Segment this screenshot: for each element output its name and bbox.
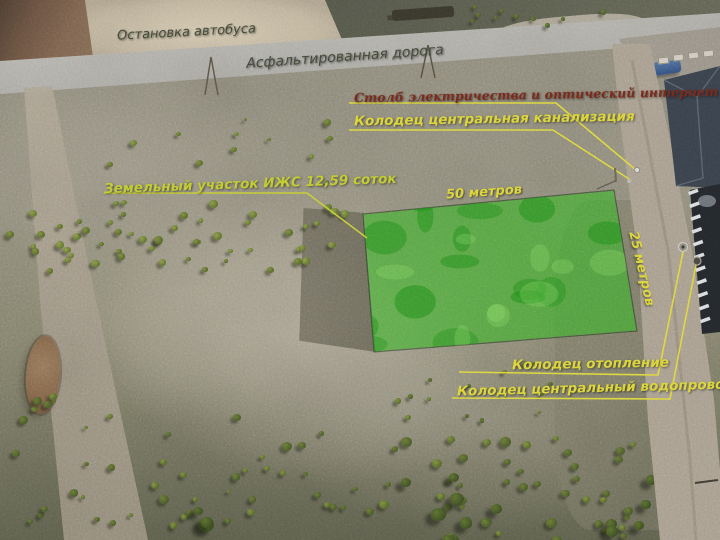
annotation-overlay — [0, 0, 720, 540]
photo-grain — [0, 0, 720, 540]
label-heating-well: Колодец отопление — [512, 355, 669, 374]
aerial-photo: Остановка автобуса Асфальтированная доро… — [0, 0, 720, 540]
